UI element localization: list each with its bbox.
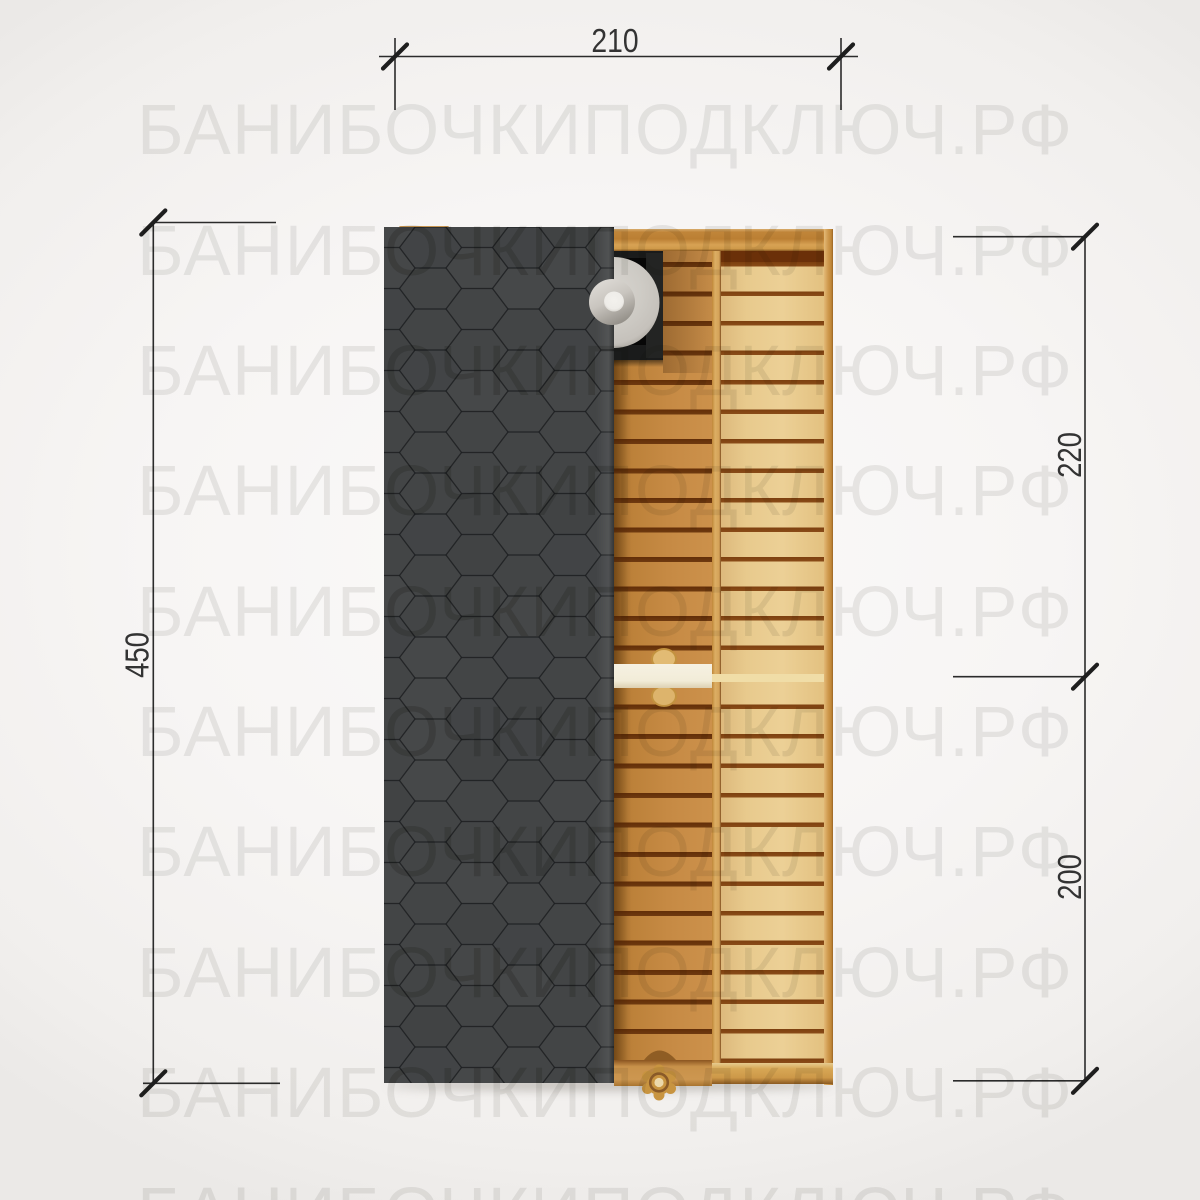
svg-text:210: 210 (591, 22, 638, 60)
